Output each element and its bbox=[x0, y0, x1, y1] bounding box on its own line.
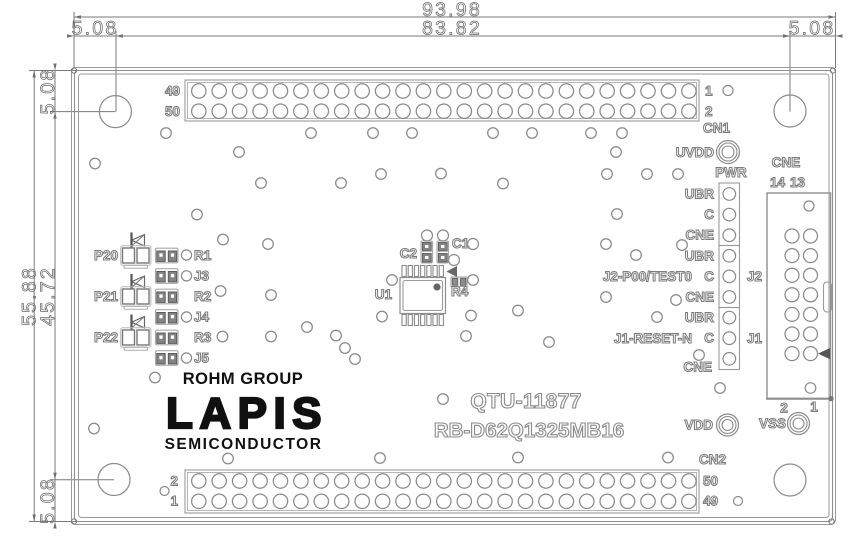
svg-text:CNE: CNE bbox=[683, 360, 712, 375]
svg-text:C2: C2 bbox=[400, 246, 417, 261]
svg-text:UBR: UBR bbox=[685, 187, 714, 202]
svg-text:CNE: CNE bbox=[685, 290, 714, 305]
svg-text:CNE: CNE bbox=[772, 155, 801, 170]
svg-text:5.08: 5.08 bbox=[37, 68, 59, 115]
svg-text:J1: J1 bbox=[747, 331, 763, 346]
svg-text:C: C bbox=[704, 207, 714, 222]
svg-text:UVDD: UVDD bbox=[676, 145, 715, 160]
svg-text:49: 49 bbox=[703, 494, 718, 509]
svg-text:UBR: UBR bbox=[685, 248, 714, 263]
svg-text:5.08: 5.08 bbox=[789, 18, 836, 40]
svg-text:J2-P00/TEST0: J2-P00/TEST0 bbox=[603, 269, 692, 284]
svg-text:J2: J2 bbox=[747, 269, 762, 284]
svg-text:J1-RESET-N: J1-RESET-N bbox=[614, 331, 692, 346]
svg-text:CNE: CNE bbox=[685, 228, 714, 243]
svg-text:2: 2 bbox=[780, 401, 788, 416]
svg-text:RB-D62Q1325MB16: RB-D62Q1325MB16 bbox=[434, 419, 624, 442]
svg-text:1: 1 bbox=[810, 400, 818, 415]
svg-text:50: 50 bbox=[703, 474, 718, 489]
svg-text:50: 50 bbox=[165, 104, 180, 119]
svg-text:C: C bbox=[704, 331, 714, 346]
svg-text:R3: R3 bbox=[194, 330, 212, 345]
svg-text:U1: U1 bbox=[375, 287, 393, 302]
svg-text:P20: P20 bbox=[94, 248, 118, 263]
svg-text:J3: J3 bbox=[194, 269, 210, 284]
svg-text:J4: J4 bbox=[194, 310, 210, 325]
svg-text:CN1: CN1 bbox=[703, 121, 730, 136]
svg-text:ROHM GROUP: ROHM GROUP bbox=[183, 370, 304, 388]
svg-text:14: 14 bbox=[770, 175, 786, 190]
svg-text:2: 2 bbox=[170, 474, 178, 489]
svg-text:83.82: 83.82 bbox=[422, 18, 482, 40]
svg-text:2: 2 bbox=[705, 104, 713, 119]
svg-text:VSS: VSS bbox=[759, 416, 786, 431]
svg-text:45.72: 45.72 bbox=[37, 266, 59, 326]
svg-text:5.08: 5.08 bbox=[37, 477, 59, 524]
svg-text:QTU-11877: QTU-11877 bbox=[470, 390, 581, 413]
svg-text:UBR: UBR bbox=[685, 310, 714, 325]
svg-text:P21: P21 bbox=[94, 289, 119, 304]
svg-text:1: 1 bbox=[705, 84, 713, 99]
svg-text:5.08: 5.08 bbox=[72, 18, 119, 40]
svg-text:PWR: PWR bbox=[715, 165, 747, 180]
svg-text:LAPIS: LAPIS bbox=[166, 389, 328, 438]
svg-text:VDD: VDD bbox=[684, 418, 713, 433]
svg-text:CN2: CN2 bbox=[699, 452, 726, 467]
svg-text:SEMICONDUCTOR: SEMICONDUCTOR bbox=[165, 436, 323, 453]
svg-text:49: 49 bbox=[165, 84, 180, 99]
svg-text:C: C bbox=[704, 269, 714, 284]
svg-text:1: 1 bbox=[170, 494, 178, 509]
svg-text:R4: R4 bbox=[451, 284, 469, 299]
svg-text:P22: P22 bbox=[94, 330, 118, 345]
svg-text:13: 13 bbox=[790, 175, 806, 190]
svg-text:J5: J5 bbox=[194, 351, 210, 366]
svg-text:R1: R1 bbox=[194, 248, 212, 263]
svg-text:R2: R2 bbox=[194, 289, 211, 304]
